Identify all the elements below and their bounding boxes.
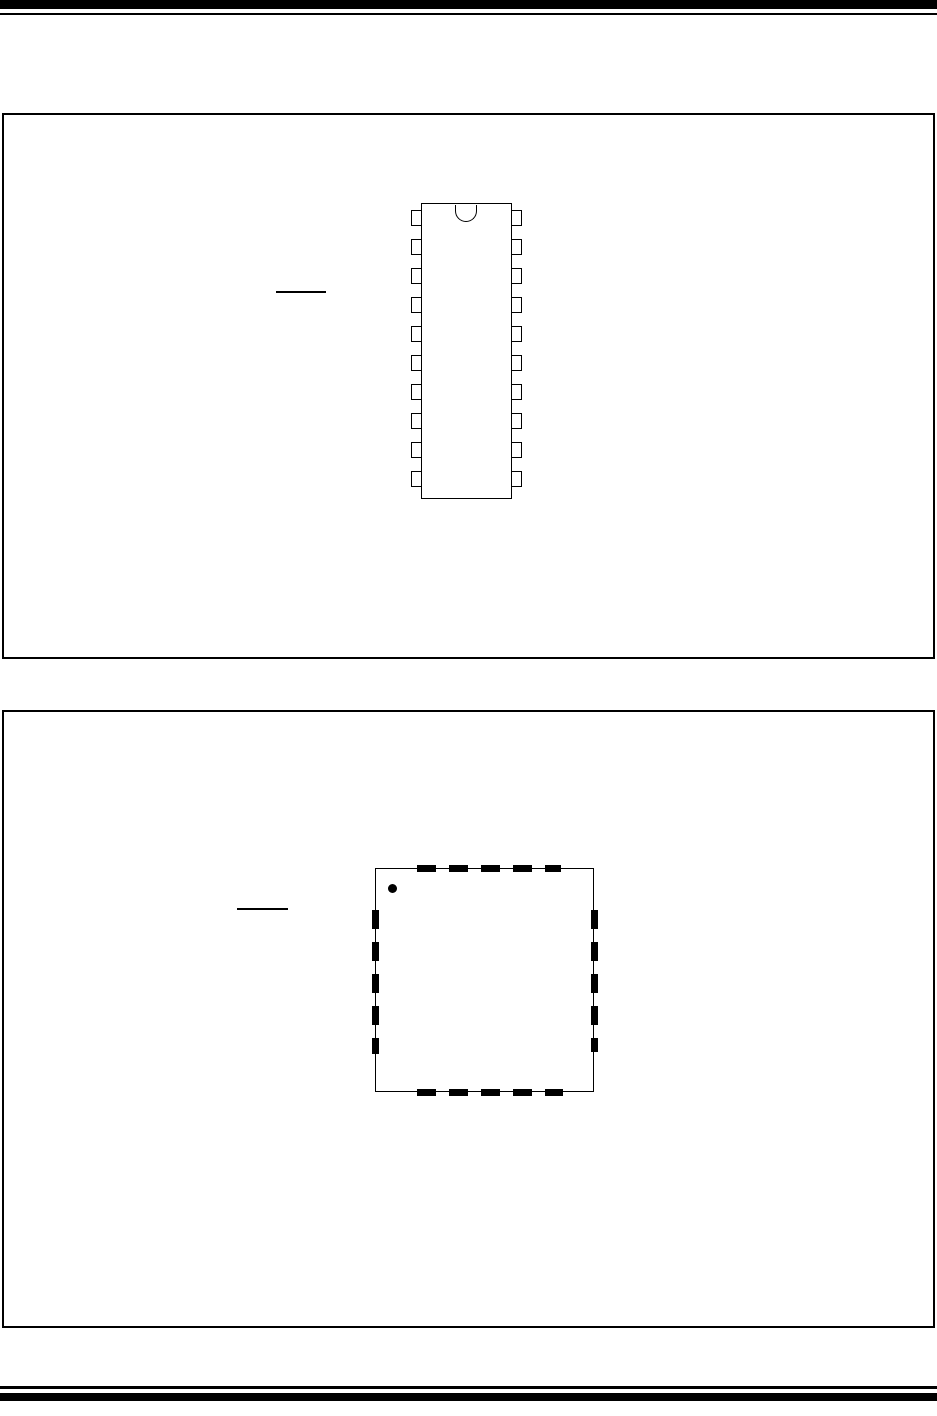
dip-pin-left — [411, 297, 422, 313]
dip-pin-left — [411, 413, 422, 429]
qfn-pads-right — [591, 910, 598, 1052]
dip-pin-right — [511, 239, 522, 255]
qfn-pads-left — [372, 910, 379, 1054]
footer-rule-thick — [0, 1393, 937, 1401]
dip-pin-right — [511, 384, 522, 400]
footer-rule-thin — [0, 1386, 937, 1389]
figure1-overline-annotation — [276, 291, 326, 293]
dip-pin-right — [511, 355, 522, 371]
header-rule-thin — [0, 13, 937, 16]
dip-pin-left — [411, 268, 422, 284]
header-rule-thick — [0, 0, 937, 9]
dip-pin-left — [411, 384, 422, 400]
qfn-pin1-dot-icon — [388, 884, 397, 893]
dip-pin-right — [511, 326, 522, 342]
dip-pin-left — [411, 442, 422, 458]
dip-pin-left — [411, 471, 422, 487]
qfn-pads-top — [417, 865, 561, 872]
qfn-pads-bottom — [417, 1089, 563, 1096]
dip-pin-right — [511, 413, 522, 429]
dip-pin-right — [511, 268, 522, 284]
qfn-package-body — [375, 868, 594, 1092]
dip-pin-right — [511, 442, 522, 458]
dip-pin-left — [411, 239, 422, 255]
dip-pin-right — [511, 210, 522, 226]
dip-pin-left — [411, 326, 422, 342]
dip-pin-right — [511, 297, 522, 313]
dip-pin-right — [511, 471, 522, 487]
dip-pin-left — [411, 355, 422, 371]
figure2-overline-annotation — [237, 908, 288, 910]
datasheet-page: { "page": { "kind": "datasheet-package-o… — [0, 0, 937, 1416]
dip-pin-left — [411, 210, 422, 226]
dip-package-body — [421, 203, 512, 499]
